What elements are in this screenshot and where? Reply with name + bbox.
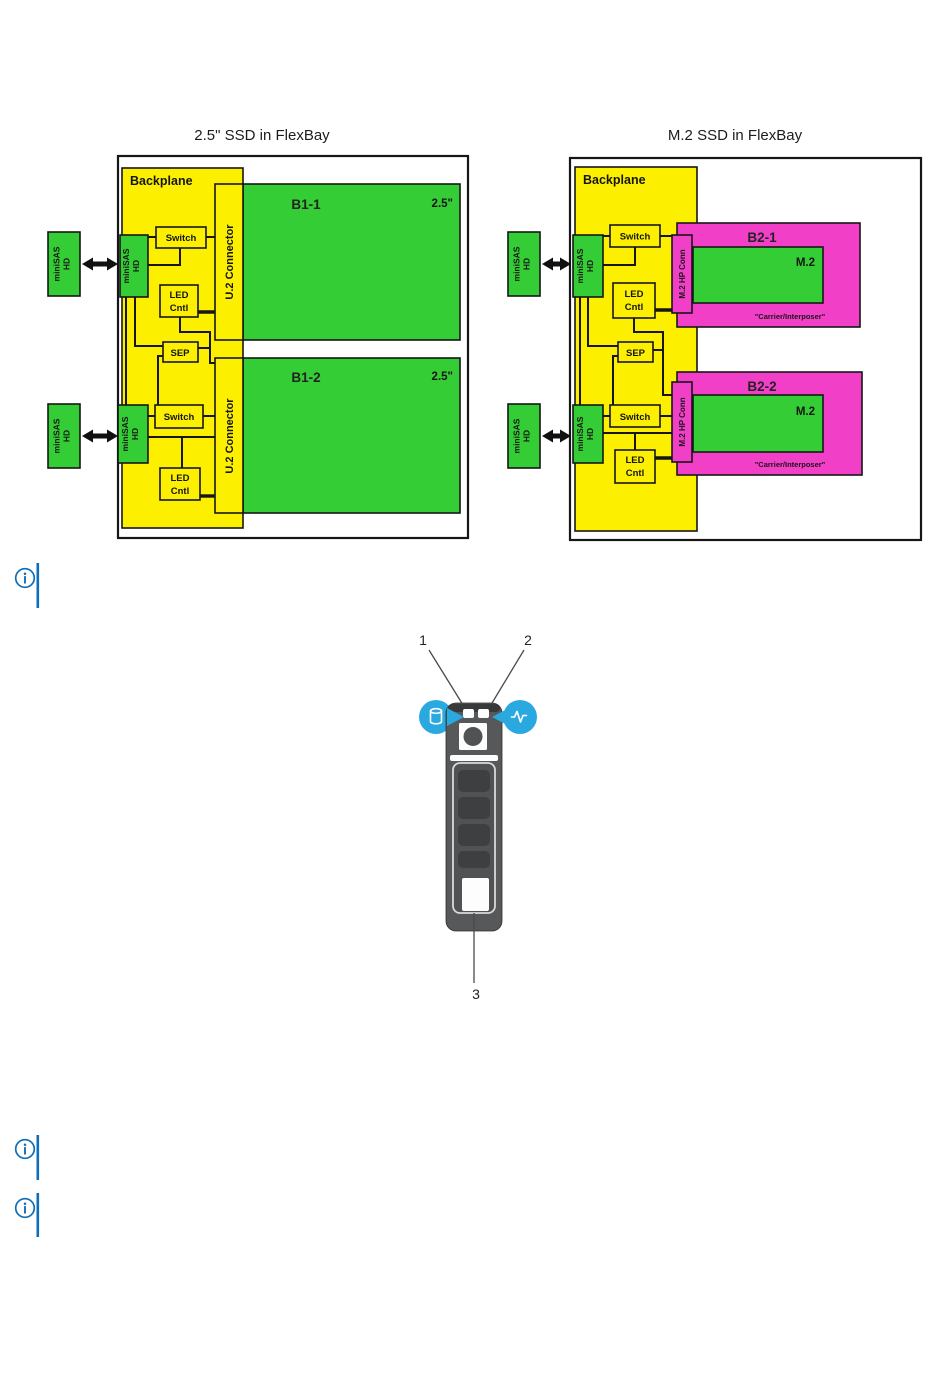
minisas-label: miniSAS <box>52 418 62 453</box>
switch-label: Switch <box>164 412 195 423</box>
note-marker-2 <box>10 1133 44 1183</box>
figure-title: M.2 SSD in FlexBay <box>668 127 803 144</box>
document-page: 2.5" SSD in FlexBay Backplane B1 <box>0 0 950 1387</box>
status-led <box>463 709 474 718</box>
switch-box-bottom: Switch <box>155 405 203 428</box>
hd-label: HD <box>131 260 141 272</box>
bay-label: B1-2 <box>291 370 320 385</box>
callout-2: 2 <box>524 632 532 648</box>
switch-box-bottom: Switch <box>610 405 660 427</box>
m2-module-label: M.2 <box>796 257 815 269</box>
handle-ridge <box>458 824 490 846</box>
callout-3: 3 <box>472 986 480 1002</box>
sep-label: SEP <box>170 348 190 359</box>
callout-1: 1 <box>419 632 427 648</box>
handle-ridge <box>458 797 490 819</box>
bidirectional-arrow-top <box>82 258 118 271</box>
m2-hp-conn-label: M.2 HP Conn <box>678 397 687 446</box>
minisas-label: miniSAS <box>512 246 522 281</box>
cntl-label: Cntl <box>170 303 188 314</box>
led-cntl-box-bottom: LED Cntl <box>615 450 655 483</box>
switch-box-top: Switch <box>610 225 660 247</box>
bay-label: B2-2 <box>747 379 776 394</box>
led-label: LED <box>626 455 645 466</box>
note-marker-1 <box>10 561 44 611</box>
minisas-label: miniSAS <box>512 418 522 453</box>
hd-label: HD <box>130 428 140 440</box>
note-rule <box>37 563 40 608</box>
hd-label: HD <box>62 258 72 270</box>
sep-box: SEP <box>163 342 198 362</box>
drive-bay-b1-2: B1-2 2.5" <box>243 358 460 513</box>
led-cntl-box-bottom: LED Cntl <box>160 468 200 500</box>
bidirectional-arrow-top <box>542 258 571 271</box>
bay-label: B1-1 <box>291 197 321 212</box>
backplane-minisas-top: miniSAS HD <box>573 235 603 297</box>
figure-title: 2.5" SSD in FlexBay <box>194 127 330 144</box>
hd-label: HD <box>585 260 595 272</box>
switch-box-top: Switch <box>156 227 206 248</box>
bay-label: B2-1 <box>747 230 777 245</box>
external-minisas-top: miniSAS HD <box>48 232 80 296</box>
backplane-label: Backplane <box>130 174 193 188</box>
figure-m2-ssd-flexbay: M.2 SSD in FlexBay Backplane B2-1 <box>490 120 930 545</box>
carrier-interposer-label: "Carrier/Interposer" <box>755 460 826 469</box>
cntl-label: Cntl <box>171 486 189 497</box>
switch-label: Switch <box>620 232 651 243</box>
external-minisas-bottom: miniSAS HD <box>508 404 540 468</box>
bidirectional-arrow-bottom <box>542 430 571 443</box>
hd-label: HD <box>522 430 532 442</box>
m2-hp-conn-top: M.2 HP Conn <box>672 235 692 313</box>
minisas-label: miniSAS <box>575 416 585 451</box>
minisas-label: miniSAS <box>575 248 585 283</box>
backplane-minisas-bottom: miniSAS HD <box>118 405 148 463</box>
carrier-bay-b2-2: B2-2 M.2 "Carrier/Interposer" <box>677 372 862 475</box>
switch-label: Switch <box>620 412 651 423</box>
hd-label: HD <box>522 258 532 270</box>
led-label: LED <box>171 473 190 484</box>
carrier-top-cap <box>448 704 500 712</box>
info-icon <box>16 569 35 588</box>
cntl-label: Cntl <box>625 302 643 313</box>
note-rule <box>37 1193 40 1237</box>
carrier-interposer-label: "Carrier/Interposer" <box>755 312 826 321</box>
switch-label: Switch <box>166 233 197 244</box>
note-marker-3 <box>10 1191 44 1241</box>
bay-size-label: 2.5" <box>432 371 453 383</box>
hd-label: HD <box>585 428 595 440</box>
minisas-label: miniSAS <box>120 416 130 451</box>
u2-connector-top: U.2 Connector <box>215 184 243 340</box>
led-cntl-box-top: LED Cntl <box>613 283 655 318</box>
u2-connector-bottom: U.2 Connector <box>215 358 243 513</box>
note-rule <box>37 1135 40 1180</box>
sep-box: SEP <box>618 342 653 362</box>
backplane-minisas-top: miniSAS HD <box>120 235 148 297</box>
m2-module-label: M.2 <box>796 406 815 418</box>
info-icon <box>16 1140 35 1159</box>
led-label: LED <box>170 290 189 301</box>
backplane-label: Backplane <box>583 173 646 187</box>
external-minisas-top: miniSAS HD <box>508 232 540 296</box>
drive-label-area <box>462 878 489 911</box>
figure-drive-carrier: 1 2 <box>395 625 595 1015</box>
u2-connector-label: U.2 Connector <box>224 398 236 474</box>
m2-hp-conn-label: M.2 HP Conn <box>678 249 687 298</box>
drive-carrier <box>446 703 502 931</box>
bidirectional-arrow-bottom <box>82 430 118 443</box>
handle-ridge <box>458 851 490 868</box>
carrier-bay-b2-1: B2-1 M.2 "Carrier/Interposer" <box>677 223 860 327</box>
bay-size-label: 2.5" <box>432 198 453 210</box>
handle-ridge <box>458 770 490 792</box>
drive-bay-b1-1: B1-1 2.5" <box>243 184 460 340</box>
cntl-label: Cntl <box>626 468 644 479</box>
sep-label: SEP <box>626 348 646 359</box>
backplane-minisas-bottom: miniSAS HD <box>573 405 603 463</box>
led-label: LED <box>625 289 644 300</box>
hd-label: HD <box>62 430 72 442</box>
info-icon <box>16 1199 35 1218</box>
activity-led <box>478 709 489 718</box>
handle-separator <box>450 755 498 761</box>
minisas-label: miniSAS <box>52 246 62 281</box>
release-button <box>464 727 483 746</box>
led-cntl-box-top: LED Cntl <box>160 285 198 317</box>
m2-hp-conn-bottom: M.2 HP Conn <box>672 382 692 462</box>
external-minisas-bottom: miniSAS HD <box>48 404 80 468</box>
minisas-label: miniSAS <box>121 248 131 283</box>
figure-2-5-ssd-flexbay: 2.5" SSD in FlexBay Backplane B1 <box>40 120 470 545</box>
u2-connector-label: U.2 Connector <box>224 224 236 300</box>
